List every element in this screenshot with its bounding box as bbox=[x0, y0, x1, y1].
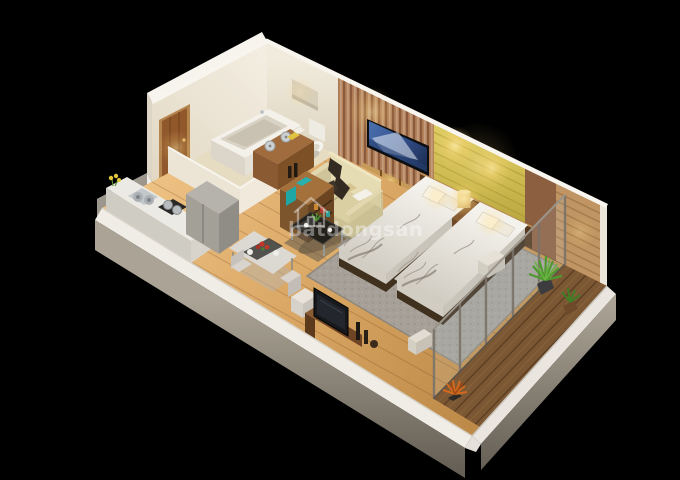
watermark-text: batdongsan bbox=[288, 218, 423, 241]
screenshot-canvas: batdongsan bbox=[0, 0, 680, 480]
apartment-3d-floorplan-render: batdongsan bbox=[0, 0, 680, 480]
